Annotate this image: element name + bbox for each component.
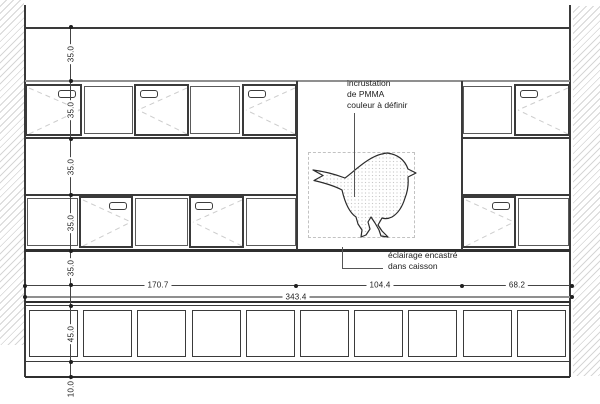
pmma-note-line: incrustation [347,78,407,89]
open-bay [135,198,188,246]
cabinet-door [134,84,189,136]
upper-row-top-line [25,80,570,82]
middle-row-top-line-left [25,194,297,196]
dim-label-upper-row: 35.0 [66,100,75,120]
lighting-leader-vertical [342,247,343,268]
dim-label-top-gap: 35.0 [66,44,75,64]
door-handle [195,202,213,210]
dim-dot [69,137,73,141]
wall-unit-bottom-line [25,249,570,252]
dim-label-total: 343.4 [282,292,309,301]
dim-dot [460,284,464,288]
pmma-leader-line [354,113,355,197]
dim-dot [570,295,574,299]
dim-label-plinth-height: 10.0 [66,379,75,399]
dim-label-base-height: 45.0 [66,324,75,344]
dim-dot [294,284,298,288]
drawer-front [137,310,186,357]
pmma-note-line: de PMMA [347,89,407,100]
cabinet-door [514,84,570,136]
cabinet-door [242,84,297,136]
lighting-note-line: dans caisson [388,261,457,272]
drawer-front [300,310,349,357]
drawer-front [463,310,512,357]
drawer-front [192,310,241,357]
dim-label-mid-gap: 35.0 [66,157,75,177]
dim-dot [69,283,73,287]
dim-dot [570,284,574,288]
door-handle [492,202,510,210]
door-handle [140,90,158,98]
open-bay [463,86,512,134]
horizontal-dimension-line [25,285,573,286]
open-bay [190,86,240,134]
door-handle [58,90,76,98]
open-bay [518,198,569,246]
top-boundary-line [25,27,570,29]
dim-label-left-section: 170.7 [144,281,171,290]
dim-dot [69,249,73,253]
lighting-note-line: éclairage encastré [388,250,457,261]
upper-row-bottom-line-right [462,137,570,139]
ground-line [25,376,570,378]
bird-silhouette [305,143,423,243]
drawer-front [517,310,566,357]
drawer-front [408,310,457,357]
dim-label-lower-gap: 35.0 [66,258,75,278]
pmma-note: incrustation de PMMA couleur à définir [347,78,407,111]
dim-dot [69,360,73,364]
drawer-front [354,310,403,357]
dim-dot [69,79,73,83]
elevation-drawing: incrustation de PMMA couleur à définir é… [0,0,600,404]
dim-dot [69,25,73,29]
open-bay [84,86,133,134]
pmma-note-line: couleur à définir [347,100,407,111]
drawer-front [246,310,295,357]
drawer-front [83,310,132,357]
cabinet-door [189,196,244,248]
cabinet-door [462,196,516,248]
dim-dot [69,304,73,308]
dim-label-center-section: 104.4 [366,281,393,290]
dim-dot [23,284,27,288]
dim-dot [23,295,27,299]
open-bay [246,198,296,246]
wall-hatch-right [573,6,600,376]
dim-label-right-section: 68.2 [506,281,528,290]
door-handle [109,202,127,210]
upper-row-bottom-line-left [25,137,297,139]
wall-hatch-left [0,0,24,345]
door-handle [248,90,266,98]
lighting-leader-horizontal [342,268,383,269]
worktop-line [25,301,570,303]
door-handle [520,90,538,98]
dim-dot [69,193,73,197]
cabinet-door [79,196,133,248]
lighting-note: éclairage encastré dans caisson [388,250,457,272]
dim-label-middle-row: 35.0 [66,213,75,233]
